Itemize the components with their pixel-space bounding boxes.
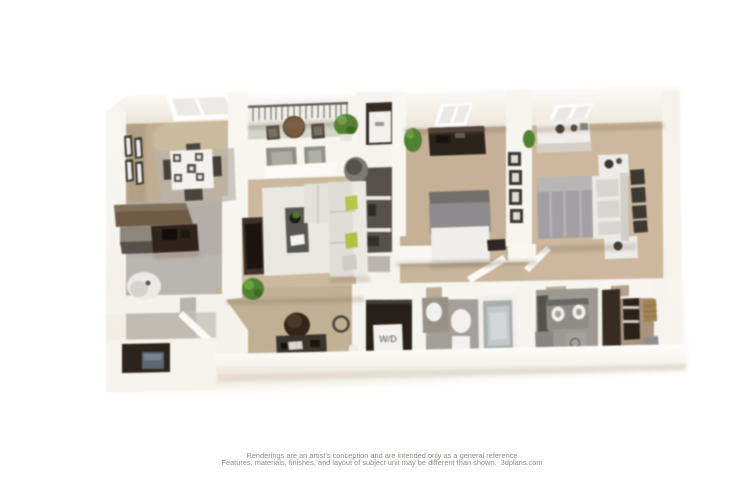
svg-text:W/D: W/D (379, 334, 397, 344)
